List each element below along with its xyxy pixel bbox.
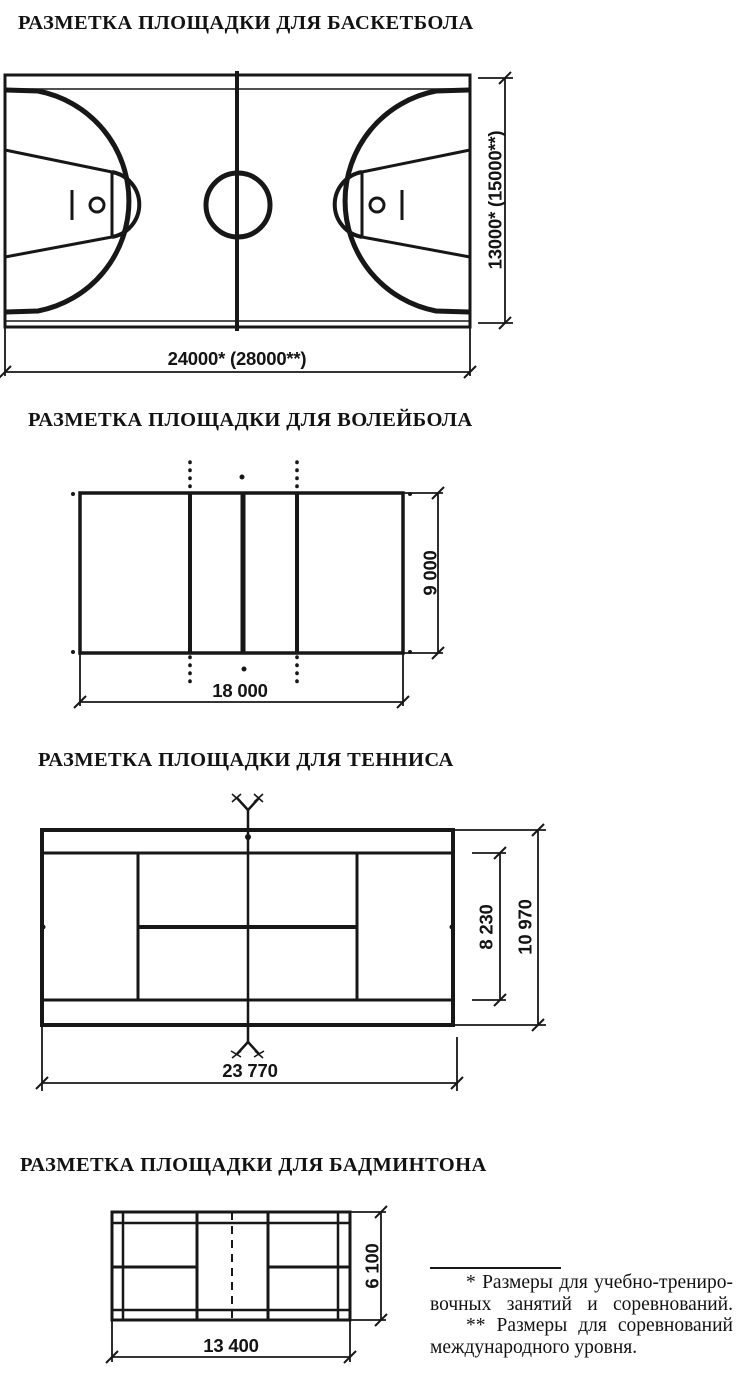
hoop-left [90,198,104,212]
footnotes: * Размеры для учебно-трениро- вочных зан… [430,1272,733,1358]
tennis-height-dimension: 10 970 [515,899,536,954]
badminton-court-diagram: 6 100 13 400 [80,1195,410,1375]
footnote-line: международного уровня. [430,1337,733,1359]
key-trapezoid-left [5,150,112,257]
badminton-title: РАЗМЕТКА ПЛОЩАДКИ ДЛЯ БАДМИНТОНА [20,1154,487,1177]
key-trapezoid-right [362,150,470,257]
tennis-singles-width-dimension: 8 230 [476,904,497,949]
volleyball-width-dimension: 18 000 [212,680,267,701]
center-mark-top [240,475,245,480]
three-point-arc-right [345,90,469,312]
basketball-height-dimension: 13000* (15000**) [485,131,506,270]
tennis-width-dimension: 23 770 [222,1060,277,1081]
hoop-right [370,198,384,212]
basketball-width-dimension: 24000* (28000**) [168,348,307,369]
three-point-arc-left [6,90,129,312]
volleyball-title: РАЗМЕТКА ПЛОЩАДКИ ДЛЯ ВОЛЕЙБОЛА [28,409,473,432]
corner-mark [71,492,75,496]
footnote-rule [430,1267,561,1269]
volleyball-court-diagram: 9 000 18 000 [40,450,500,720]
scanned-page: РАЗМЕТКА ПЛОЩАДКИ ДЛЯ БАСКЕТБОЛА 13000* … [0,0,756,1379]
tennis-title: РАЗМЕТКА ПЛОЩАДКИ ДЛЯ ТЕННИСА [38,749,454,772]
footnote-line: * Размеры для учебно-трениро- [430,1272,733,1294]
footnote-line: вочных занятий и соревнований. [430,1294,733,1316]
net-line-mark [245,834,251,840]
volleyball-height-dimension: 9 000 [420,550,441,595]
badminton-height-dimension: 6 100 [362,1243,383,1288]
net-post-top-tips [232,794,263,802]
tennis-court-diagram: 8 230 10 970 23 770 [20,790,580,1110]
center-mark-bottom [242,667,247,672]
basketball-title: РАЗМЕТКА ПЛОЩАДКИ ДЛЯ БАСКЕТБОЛА [18,12,474,35]
baseline-center-mark-left [41,925,46,930]
footnote-line: ** Размеры для соревнований [430,1315,733,1337]
badminton-width-dimension: 13 400 [203,1335,258,1356]
net-post-bottom-tips [231,1051,264,1058]
basketball-court-diagram: 13000* (15000**) 24000* (28000**) [0,60,530,380]
length-dimension-lines [42,1025,457,1091]
baseline-center-mark-right [450,925,455,930]
corner-mark [71,650,75,654]
